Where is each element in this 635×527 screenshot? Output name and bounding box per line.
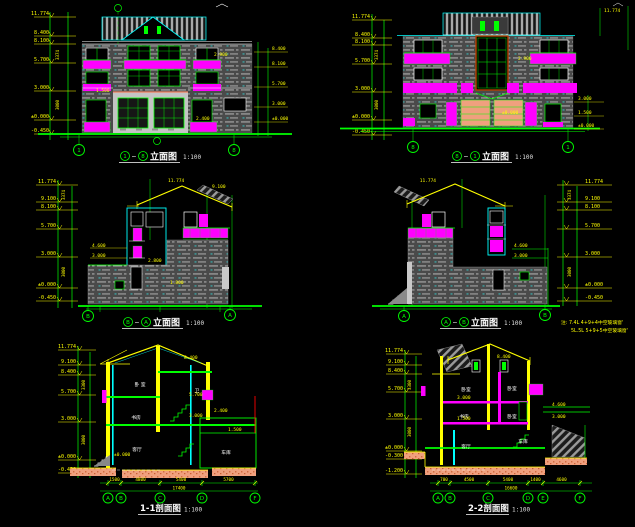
building-side xyxy=(78,179,262,312)
slope-hatch xyxy=(552,425,585,457)
balcony-rail xyxy=(408,228,453,238)
ground-hatch xyxy=(122,470,208,478)
chain-dim: 3000 xyxy=(567,266,572,277)
callout: 3.000 xyxy=(189,413,203,419)
dim-text: 700 xyxy=(440,477,448,483)
callout: 1.500 xyxy=(228,427,242,433)
level-label: 9.100 xyxy=(585,196,600,202)
title-bubble: 1 xyxy=(123,154,127,160)
callout: 2.400 xyxy=(196,116,210,122)
wall-cut xyxy=(498,372,501,422)
room-label: 客厅 xyxy=(132,446,142,453)
level-label: ±0.000 xyxy=(578,123,595,129)
level-label: ±0.000 xyxy=(585,282,603,288)
axis-bubbles: A B C D E F xyxy=(433,493,585,503)
title-text: 立面图 xyxy=(482,151,509,163)
grid-bubble-label: B xyxy=(86,314,90,320)
level-label: 11.774 xyxy=(58,344,76,350)
grid-bubble-label: 1 xyxy=(77,148,81,154)
slab-cut xyxy=(443,401,528,404)
wall-cut xyxy=(487,344,490,430)
balcony-rail xyxy=(193,60,221,69)
wall xyxy=(88,240,228,304)
callout: 8.400 xyxy=(497,354,511,360)
panel-section-1-1: 11.774 9.100 8.400 5.700 3.000 ±0.000 -0… xyxy=(58,344,260,515)
window xyxy=(420,104,436,118)
planter xyxy=(84,122,110,132)
callout: 3.000 xyxy=(514,253,528,259)
window xyxy=(154,98,184,128)
grid-bubble-label: B xyxy=(119,496,123,502)
level-label: 5.700 xyxy=(355,58,370,64)
drawing-title: 1 ~ 8 立面图 1:100 xyxy=(119,151,201,163)
chain-dim: 3000 xyxy=(61,266,66,277)
window xyxy=(490,211,503,223)
level-label: ±0.000 xyxy=(272,116,289,122)
window xyxy=(432,212,445,227)
dim-text: 1400 xyxy=(530,477,541,483)
axis-bubbles: A B C D F xyxy=(103,493,260,503)
title-bubble: A xyxy=(444,320,448,326)
wall-cut xyxy=(106,362,110,468)
level-label: ±0.000 xyxy=(31,114,49,120)
grid-bubble-label: F xyxy=(578,496,581,502)
title-bubble: B xyxy=(462,320,466,326)
window-cut xyxy=(102,390,107,403)
window xyxy=(196,72,218,84)
callout: 4.600 xyxy=(92,243,106,249)
level-label: 11.774 xyxy=(31,11,49,17)
panel-side-elevation-ab: 11.774 9.100 8.100 5.700 3.000 ±0.000 -0… xyxy=(372,178,628,334)
grid-bubble-label: D xyxy=(526,496,530,502)
chain-dim: 3000 xyxy=(55,99,60,110)
level-label: 8.100 xyxy=(34,38,49,44)
room-label: 卧室 xyxy=(507,385,517,392)
callout: 2.800 xyxy=(148,258,162,264)
dim-text: 5400 xyxy=(503,477,514,483)
room-label: 车库 xyxy=(518,438,528,445)
title-bubble: A xyxy=(144,320,148,326)
level-label: 5.700 xyxy=(34,57,49,63)
ground-hatch xyxy=(70,468,116,476)
title-sep: ~ xyxy=(463,154,468,161)
title-sep: ~ xyxy=(131,154,136,161)
callout: 4.600 xyxy=(552,402,566,408)
door xyxy=(446,102,457,126)
dim-text: 5700 xyxy=(223,477,234,483)
callout: 2.900 xyxy=(214,52,228,58)
building-side xyxy=(372,179,560,309)
level-label: -0.450 xyxy=(38,295,56,301)
window xyxy=(414,68,442,80)
window xyxy=(131,212,143,226)
callout: 9.100 xyxy=(212,184,226,190)
level-label: 11.774 xyxy=(352,14,370,20)
stairs xyxy=(170,405,190,421)
grid-bubble-label: B xyxy=(543,313,547,319)
chain-dim: 3374 xyxy=(567,189,572,200)
window xyxy=(545,104,561,122)
level-label: 5.700 xyxy=(585,223,600,229)
cad-canvas: 11.774 8.400 8.100 5.700 3.000 ±0.000 -0… xyxy=(0,0,635,527)
window xyxy=(115,281,124,289)
callout: 1.800 xyxy=(170,280,184,286)
title-bubble: 1 xyxy=(473,154,477,160)
callout: 3.000 xyxy=(457,395,471,401)
level-stack-left: 11.774 8.400 8.100 5.700 3.000 ±0.000 -0… xyxy=(352,14,392,140)
window xyxy=(540,40,568,53)
grid-bubble-label: A xyxy=(402,314,406,320)
chain-dim: 3374 xyxy=(55,49,60,60)
title-scale: 1:100 xyxy=(183,154,201,161)
balcony-rail xyxy=(403,83,457,93)
chain-dim: 3300 xyxy=(407,379,412,390)
wall-cut xyxy=(156,346,160,432)
callout: 11.774 xyxy=(168,178,185,184)
drawing-title: B ~ A 立面图 1:100 xyxy=(122,317,204,329)
dormer xyxy=(472,17,508,34)
chain-dim: 3000 xyxy=(407,426,412,437)
callout: 4.600 xyxy=(514,243,528,249)
balcony-rail xyxy=(183,228,228,238)
title-text: 立面图 xyxy=(153,317,180,329)
window xyxy=(118,98,148,128)
chain-dim: 3374 xyxy=(374,49,379,60)
grid-bubble-label: 1 xyxy=(566,145,570,151)
grid-bubble-label: D xyxy=(200,496,204,502)
axis-marker-icon xyxy=(115,5,122,12)
note-line: 5L.5L 5+9+5中空玻璃窗' xyxy=(571,327,628,334)
title-bubble: 8 xyxy=(141,154,145,160)
level-label: ±0.000 xyxy=(385,445,403,451)
title-scale: 1:100 xyxy=(186,320,204,327)
roof-symbol-icon xyxy=(613,3,623,6)
level-stack-right: 8.400 8.100 5.700 3.000 ±0.000 xyxy=(254,42,289,136)
axis-bubbles: 8 1 xyxy=(408,129,574,153)
garage-door xyxy=(461,100,490,126)
window-cut xyxy=(202,390,213,400)
note-line: 注: 7.4L 4+9+4中空玻璃窗' xyxy=(561,319,623,326)
dim-text: 4500 xyxy=(464,477,475,483)
callout: 11.774 xyxy=(420,178,437,184)
level-label: 3.000 xyxy=(355,86,370,92)
callout: ±0.000 xyxy=(502,110,519,116)
wall-cut xyxy=(527,361,530,430)
level-label: 8.100 xyxy=(355,39,370,45)
dimension-rows: 1500 4800 5400 5700 17400 xyxy=(100,477,258,492)
title-scale: 1:100 xyxy=(515,154,533,161)
level-stack-left: 11.774 9.100 8.400 5.700 3.000 ±0.000 -0… xyxy=(58,344,96,478)
level-label: 9.100 xyxy=(41,196,56,202)
grid-bubble-label: E xyxy=(541,496,545,502)
callout: 1.500 xyxy=(96,88,110,94)
section-structure xyxy=(404,344,590,475)
grid-bubble-label: C xyxy=(486,496,490,502)
grid-bubble-label: 8 xyxy=(232,148,236,154)
cad-sheet: 11.774 8.400 8.100 5.700 3.000 ±0.000 -0… xyxy=(0,0,635,527)
building-front xyxy=(38,4,292,145)
level-label: 8.400 xyxy=(388,368,403,374)
level-label: 3.000 xyxy=(272,101,286,107)
level-label: 8.400 xyxy=(355,32,370,38)
balcony-rail xyxy=(124,60,186,69)
drawing-title: 8 ~ 1 立面图 1:100 xyxy=(451,151,533,163)
level-label: 11.774 xyxy=(38,179,56,185)
chain-dim: 3000 xyxy=(81,434,86,445)
window xyxy=(490,240,503,252)
panel-rear-elevation: 11.774 8.400 8.100 5.700 3.000 ±0.000 -0… xyxy=(340,3,628,163)
column xyxy=(407,262,412,304)
chain-dim: 3300 xyxy=(81,379,86,390)
level-label: 8.400 xyxy=(34,30,49,36)
window xyxy=(199,214,208,227)
ground-hatch xyxy=(545,458,587,465)
level-label: 9.100 xyxy=(388,359,403,365)
level-stack-left: 11.774 9.100 8.100 5.700 3.000 ±0.000 -0… xyxy=(36,179,78,308)
notes: 注: 7.4L 4+9+4中空玻璃窗' 5L.5L 5+9+5中空玻璃窗' xyxy=(561,319,628,334)
level-label: -0.300 xyxy=(385,453,403,459)
sill xyxy=(543,122,563,127)
dim-text: 5400 xyxy=(176,477,187,483)
grid-bubble-label: A xyxy=(228,313,232,319)
level-label: 3.000 xyxy=(61,416,76,422)
ground-hatch xyxy=(404,452,425,459)
level-label: 3.000 xyxy=(585,251,600,257)
window xyxy=(133,246,142,258)
section-structure xyxy=(70,345,256,478)
room-label: 卧室 xyxy=(507,413,517,420)
window xyxy=(520,272,529,280)
window xyxy=(184,212,197,227)
level-label: -0.450 xyxy=(352,129,370,135)
dim-total: 16600 xyxy=(505,486,518,492)
level-label: 11.774 xyxy=(385,348,403,354)
title-sep: ~ xyxy=(452,320,457,327)
callout: 11.774 xyxy=(604,8,621,14)
level-label: 3.000 xyxy=(578,96,592,102)
level-stack-left: 11.774 8.400 8.100 5.700 3.000 ±0.000 -0… xyxy=(31,11,76,140)
window xyxy=(146,212,163,227)
title-text: 立面图 xyxy=(471,317,498,329)
window xyxy=(86,100,106,122)
room-label: 卧室 xyxy=(461,386,471,393)
room-label: 客厅 xyxy=(461,443,471,450)
planter xyxy=(190,122,217,132)
level-label: 5.700 xyxy=(61,389,76,395)
balcony-rail xyxy=(530,53,576,64)
dim-text: 4600 xyxy=(556,477,567,483)
window xyxy=(519,402,527,420)
title-bubble: 8 xyxy=(455,154,459,160)
callout: 5.700 xyxy=(189,392,203,398)
window xyxy=(133,228,142,241)
level-label: 8.100 xyxy=(41,204,56,210)
level-label: 8.400 xyxy=(61,369,76,375)
slab-cut xyxy=(443,422,528,425)
grid-bubble-label: A xyxy=(106,496,110,502)
level-label: 9.100 xyxy=(61,359,76,365)
grid-bubble-label: A xyxy=(436,496,440,502)
panel-front-elevation: 11.774 8.400 8.100 5.700 3.000 ±0.000 -0… xyxy=(31,4,292,163)
grid-bubble-label: 8 xyxy=(411,145,415,151)
stair-window xyxy=(476,36,508,90)
callout: 8.400 xyxy=(184,355,198,361)
drawing-title: 2-2剖面图 1:100 xyxy=(466,503,530,515)
drawing-title: A ~ B 立面图 1:100 xyxy=(440,317,522,329)
level-label: 11.774 xyxy=(585,179,603,185)
callout: 3.000 xyxy=(92,253,106,259)
dim-text: 1500 xyxy=(109,477,120,483)
ground-hatch xyxy=(212,468,256,476)
level-label: 1.500 xyxy=(578,110,592,116)
balcony-rail xyxy=(404,53,450,64)
room-label: 车库 xyxy=(221,449,231,456)
grid-bubble-label: B xyxy=(448,496,452,502)
level-stack-right: 3.000 1.500 ±0.000 xyxy=(574,95,604,131)
door xyxy=(525,102,537,126)
roof-hatch xyxy=(394,186,429,206)
level-label: 3.000 xyxy=(388,413,403,419)
level-label: 8.100 xyxy=(272,61,286,67)
window xyxy=(490,226,503,237)
title-bubble: B xyxy=(126,320,130,326)
chain-dim: 3374 xyxy=(61,189,66,200)
callout: 1.500 xyxy=(457,416,471,422)
level-label: 5.700 xyxy=(272,81,286,87)
window-cut xyxy=(421,386,426,396)
door xyxy=(131,267,142,289)
entry-marker-icon xyxy=(154,138,161,145)
drawing-title: 1-1剖面图 1:100 xyxy=(138,503,202,515)
ground-hatch xyxy=(425,467,545,475)
level-label: -1.200 xyxy=(385,468,403,474)
grid-bubble-label: F xyxy=(253,496,256,502)
title-text: 1-1剖面图 xyxy=(140,503,181,514)
room-label: 书房 xyxy=(131,414,141,421)
title-scale: 1:100 xyxy=(184,507,202,514)
door xyxy=(493,270,504,290)
chain-dim: 3000 xyxy=(374,99,379,110)
room-label: 卧 室 xyxy=(134,381,145,388)
level-label: ±0.000 xyxy=(58,454,76,460)
panel-section-2-2: 11.774 9.100 8.400 5.700 3.000 ±0.000 -0… xyxy=(385,344,592,515)
dimension-rows: 700 4500 5400 1400 4600 16600 xyxy=(430,477,592,492)
balcony-rail xyxy=(523,83,577,93)
window xyxy=(414,40,442,53)
grid-bubble-label: C xyxy=(158,496,162,502)
callout: 3.000 xyxy=(552,414,566,420)
window xyxy=(86,72,108,84)
window xyxy=(224,98,246,111)
level-label: ±0.000 xyxy=(352,114,370,120)
title-scale: 1:100 xyxy=(504,320,522,327)
balcony-rail xyxy=(83,60,111,69)
callout: 2.900 xyxy=(518,56,532,62)
door xyxy=(222,267,229,289)
dim-total: 17400 xyxy=(173,486,186,492)
dim-text: 4800 xyxy=(135,477,146,483)
title-text: 2-2剖面图 xyxy=(468,503,509,514)
level-label: 8.400 xyxy=(272,46,286,52)
level-label: 5.700 xyxy=(41,223,56,229)
panel-side-elevation-ba: 11.774 9.100 8.100 5.700 3.000 ±0.000 -0… xyxy=(36,178,262,329)
level-label: 5.700 xyxy=(388,386,403,392)
level-label: 8.100 xyxy=(585,204,600,210)
level-label: 3.000 xyxy=(34,85,49,91)
balcony-rail xyxy=(193,84,221,91)
level-stack-right: 11.774 9.100 8.100 5.700 3.000 ±0.000 -0… xyxy=(557,179,612,306)
level-label: 3.000 xyxy=(41,251,56,257)
roof-symbol-icon xyxy=(216,4,228,7)
callout: 2.400 xyxy=(214,408,228,414)
callout: ±0.000 xyxy=(114,452,131,458)
level-label: -0.450 xyxy=(585,295,603,301)
window xyxy=(422,214,431,227)
title-text: 立面图 xyxy=(150,151,177,163)
title-scale: 1:100 xyxy=(512,507,530,514)
level-label: ±0.000 xyxy=(38,282,56,288)
window-cut xyxy=(529,384,543,395)
window xyxy=(540,68,568,80)
title-sep: ~ xyxy=(134,320,139,327)
